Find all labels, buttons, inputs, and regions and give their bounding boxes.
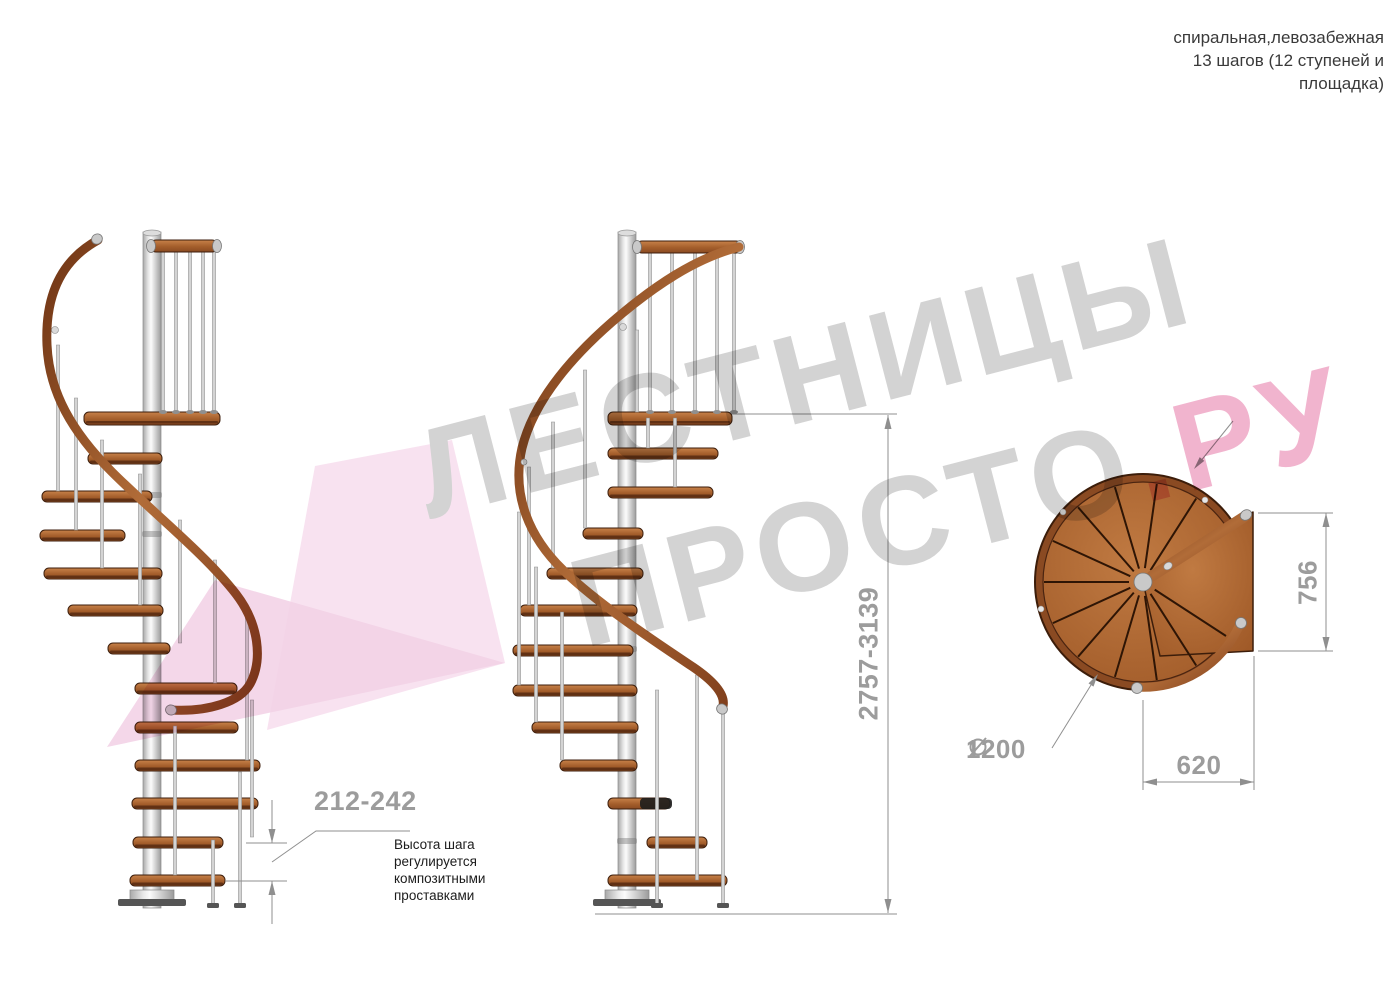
step [583, 528, 643, 539]
step [608, 798, 672, 809]
step [133, 837, 223, 848]
step [532, 722, 638, 733]
landing-depth-dimension-label: 756 [1293, 548, 1324, 618]
step [68, 605, 163, 616]
step [135, 683, 237, 694]
diameter-icon [966, 734, 990, 758]
step [44, 568, 162, 579]
step [608, 487, 713, 498]
base-flange [118, 899, 186, 906]
staircase-side-view-2 [513, 230, 745, 908]
step [135, 760, 260, 771]
step [608, 875, 727, 886]
step [513, 645, 633, 656]
landing-width-dimension-label: 620 [1153, 750, 1245, 781]
staircase-side-view-1 [40, 230, 260, 908]
step [560, 760, 637, 771]
landing-platform [608, 412, 732, 425]
leader-floor-level [1194, 421, 1233, 469]
staircase-top-view [1035, 474, 1254, 694]
dimension-total-height [885, 415, 892, 913]
top-railing [147, 240, 222, 253]
step-height-note: Высота шага регулируется композитными пр… [394, 836, 485, 904]
step-height-dimension-label: 212-242 [314, 786, 417, 817]
step [608, 448, 718, 459]
step [40, 530, 125, 541]
base-flange [593, 899, 661, 906]
step [108, 643, 170, 654]
leader-diameter [1052, 674, 1098, 748]
step [130, 875, 225, 886]
technical-drawing [0, 0, 1400, 1000]
center-pole-hub [1134, 573, 1152, 591]
diameter-dimension: 1200 [966, 734, 1026, 765]
step [135, 722, 238, 733]
landing-platform [84, 412, 220, 425]
total-height-dimension-label: 2757-3139 [854, 574, 885, 734]
staircase-drawing-page: спиральная,левозабежная 13 шагов (12 сту… [0, 0, 1400, 1000]
drawing-title: спиральная,левозабежная 13 шагов (12 сту… [1114, 26, 1384, 95]
step [513, 685, 637, 696]
